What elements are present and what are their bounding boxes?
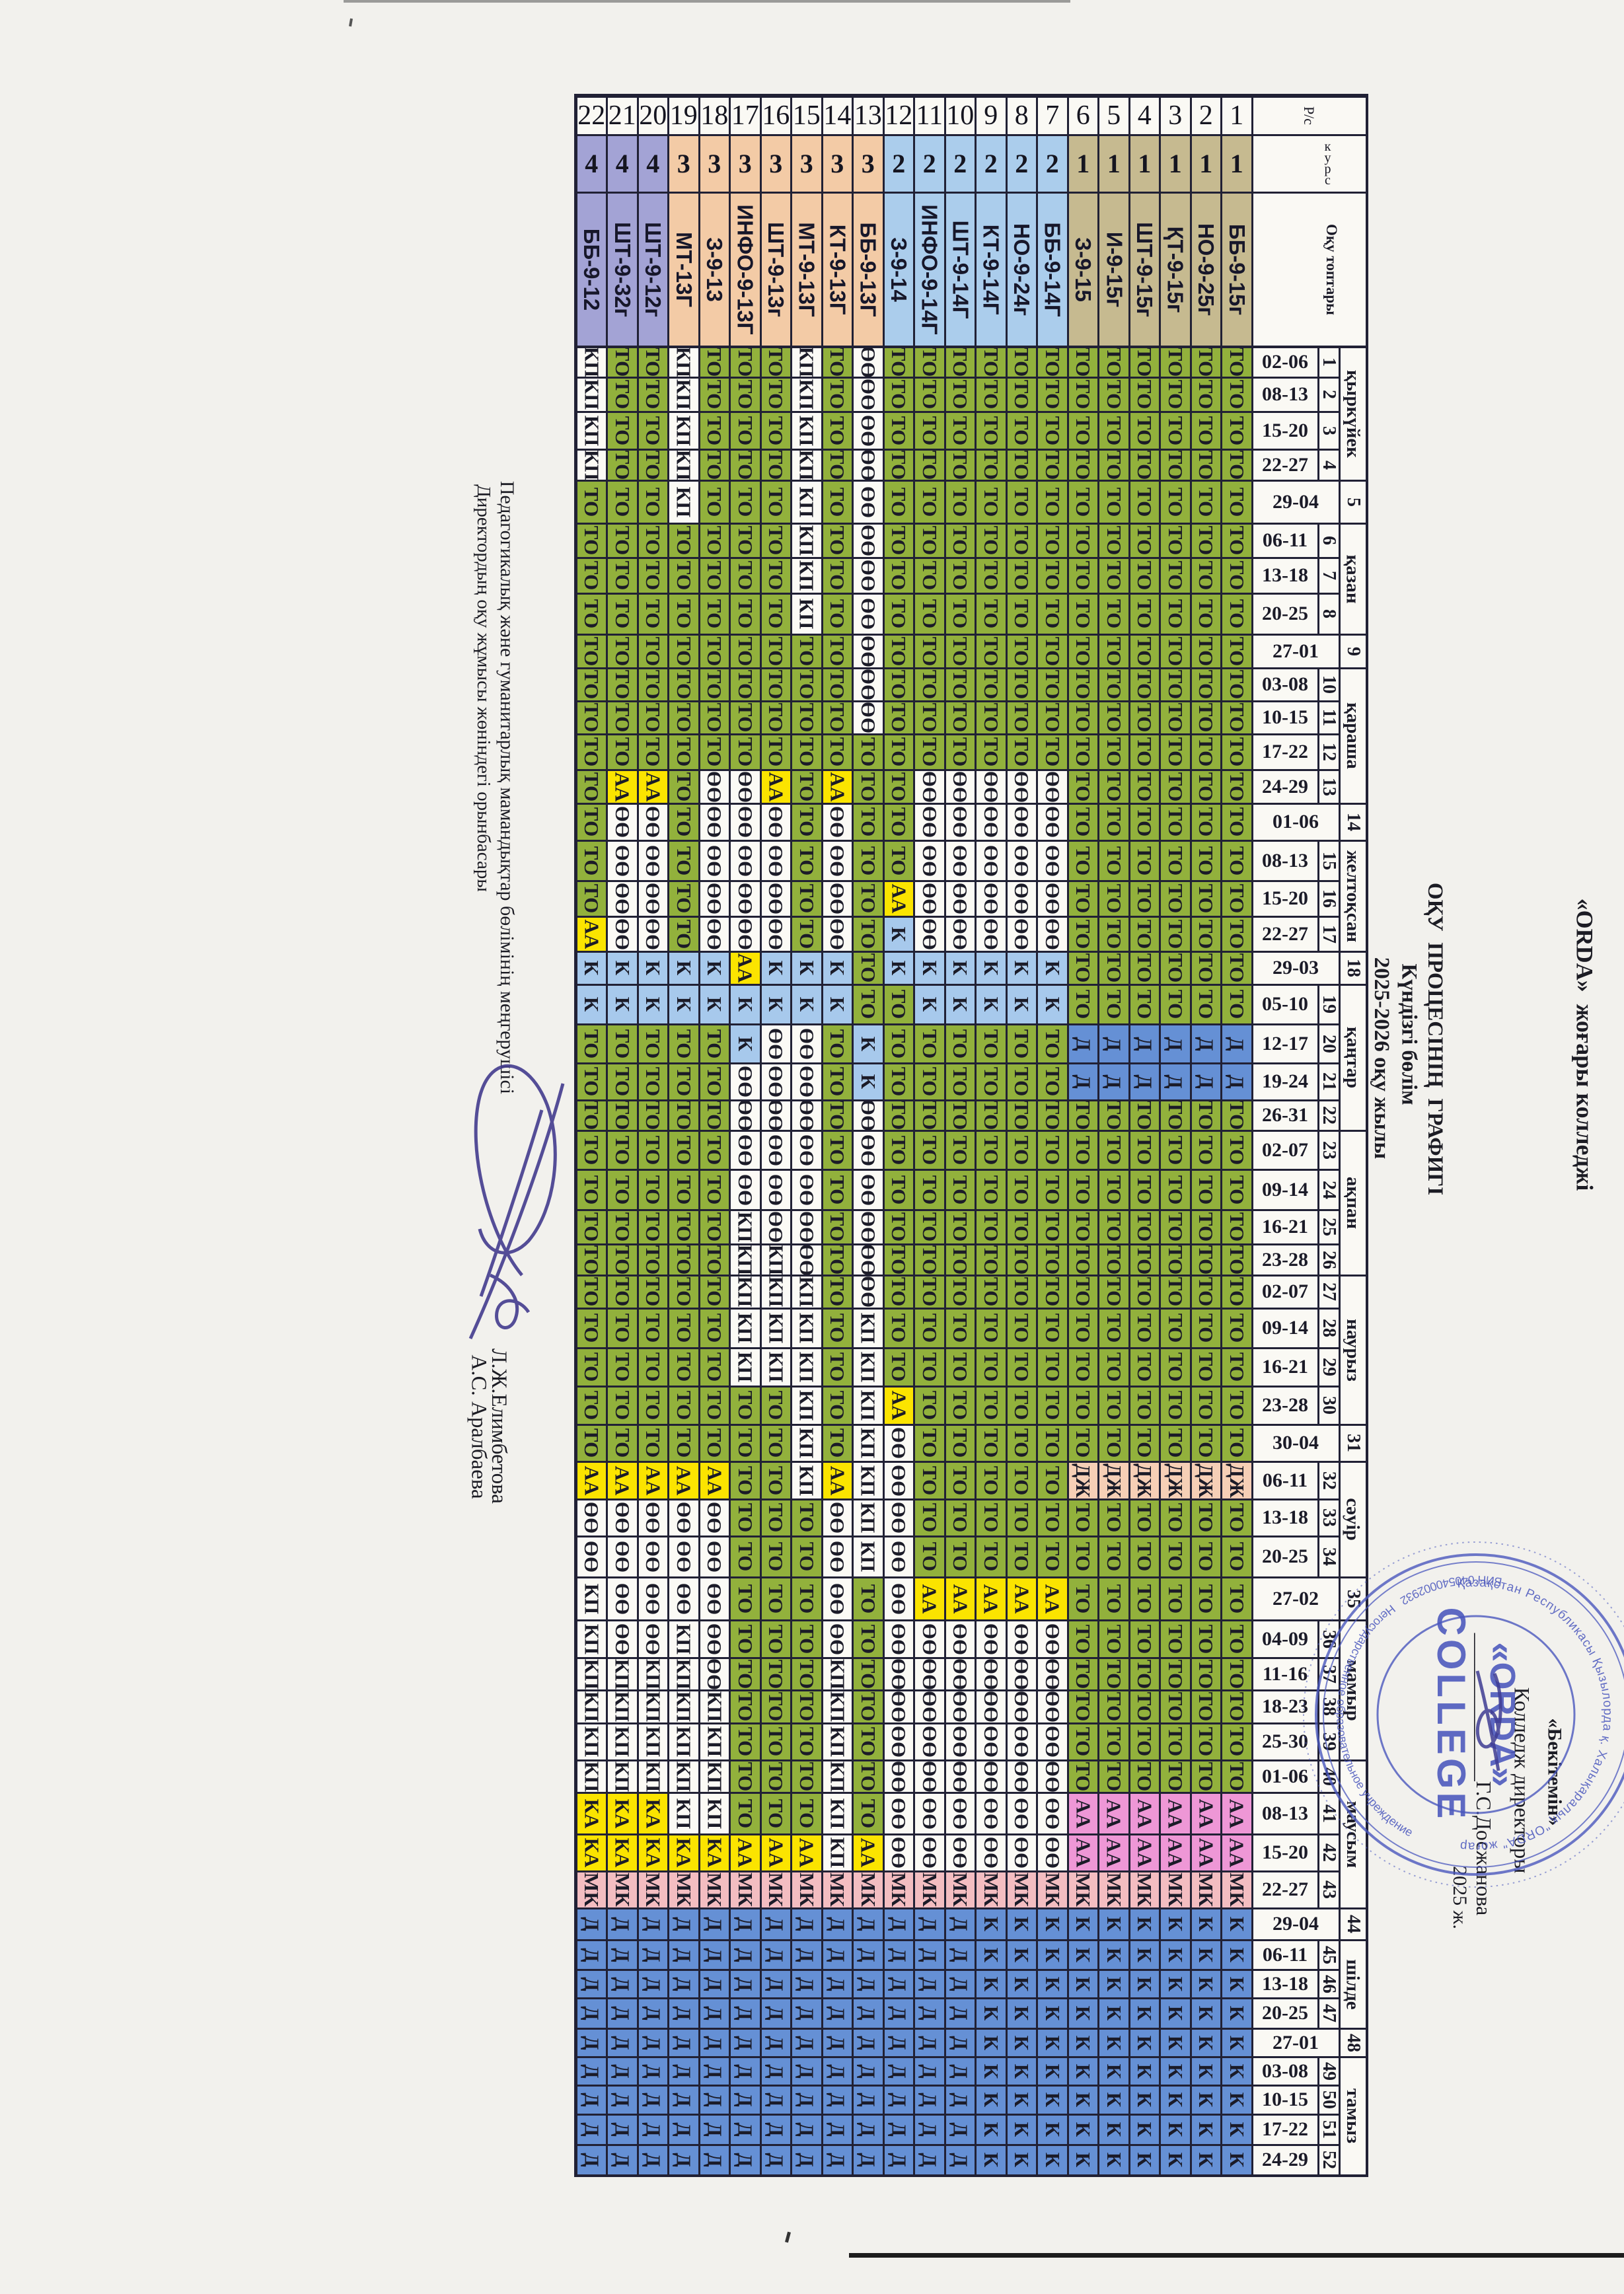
svg-text:БИН 040540002932 Негосударст: БИН 040540002932 Негосударственное образ… <box>1334 1573 1503 1839</box>
svg-text:Қазақстан Республикасы Қызылор: Қазақстан Республикасы Қызылорда қ. Халы… <box>1456 1576 1615 1853</box>
svg-text:COLLEGE: COLLEGE <box>1429 1607 1473 1822</box>
